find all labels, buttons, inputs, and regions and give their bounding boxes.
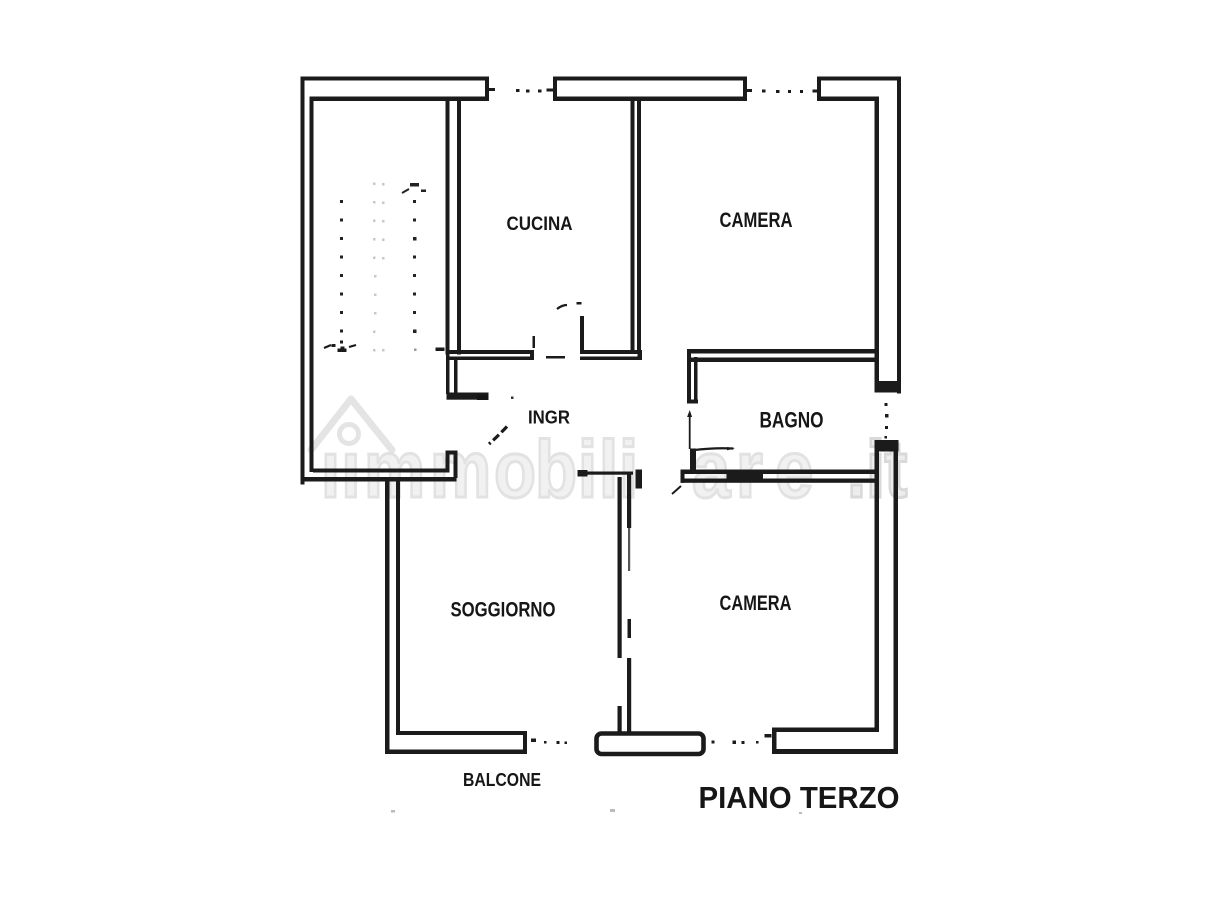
svg-text:BAGNO: BAGNO: [760, 408, 824, 433]
svg-text:INGR: INGR: [528, 407, 570, 428]
svg-text:SOGGIORNO: SOGGIORNO: [451, 599, 556, 622]
svg-text:CAMERA: CAMERA: [720, 209, 793, 232]
svg-text:CAMERA: CAMERA: [720, 591, 792, 615]
svg-text:PIANO TERZO: PIANO TERZO: [699, 781, 900, 815]
svg-text:BALCONE: BALCONE: [463, 769, 541, 790]
svg-text:CUCINA: CUCINA: [507, 213, 573, 235]
